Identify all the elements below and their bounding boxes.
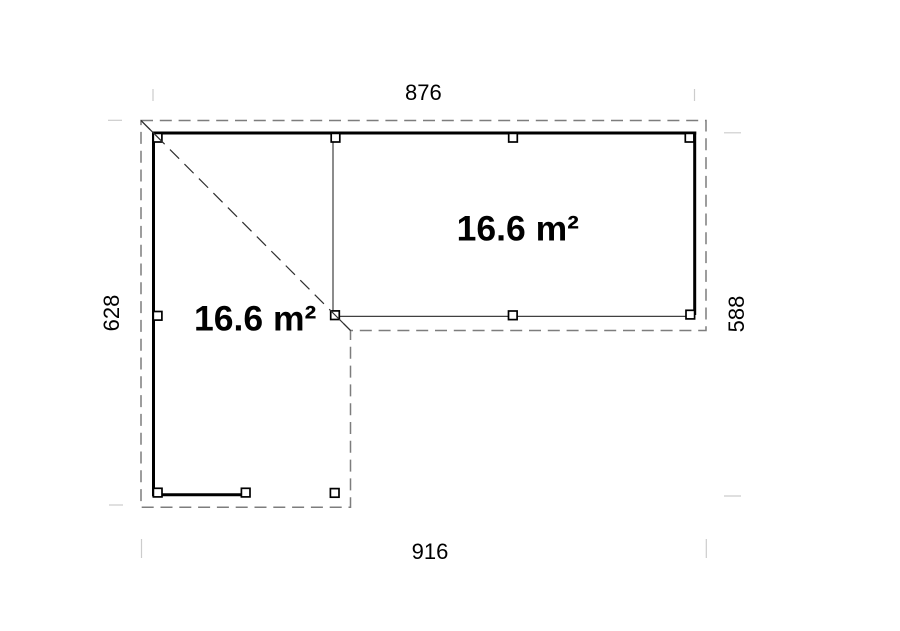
svg-text:916: 916	[412, 539, 449, 564]
svg-text:628: 628	[99, 295, 124, 332]
svg-text:16.6 m²: 16.6 m²	[194, 299, 317, 339]
svg-text:16.6 m²: 16.6 m²	[457, 208, 580, 248]
svg-text:588: 588	[724, 296, 749, 333]
svg-text:876: 876	[405, 80, 442, 105]
